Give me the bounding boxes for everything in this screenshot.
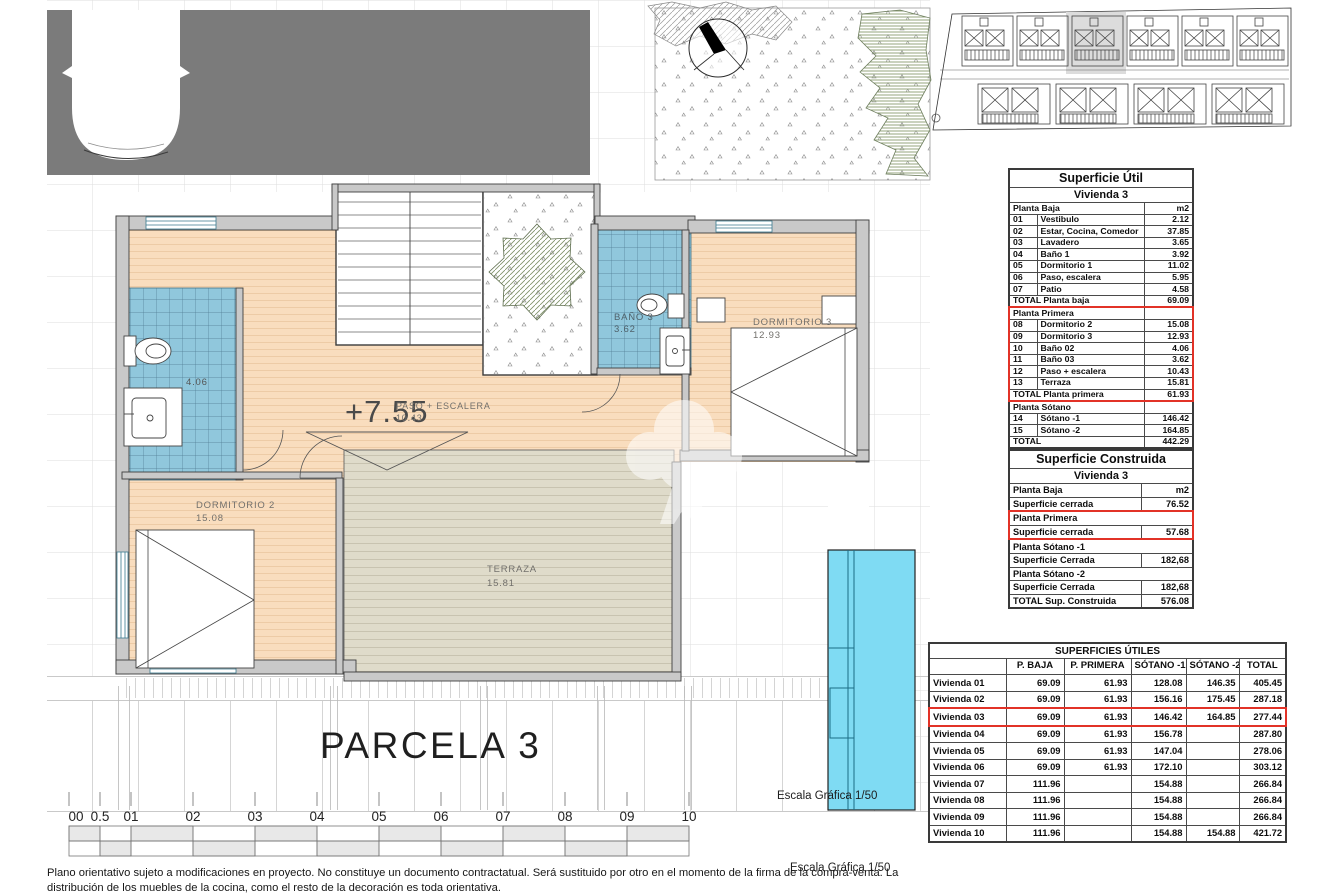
table-cell: 111.96 (1006, 809, 1064, 826)
table-cell: 69.09 (1006, 691, 1064, 708)
table-cell: Vivienda 10 (929, 825, 1006, 842)
table-title-row: SUPERFICIES ÚTILES (929, 643, 1286, 659)
table-cell: 182,68 (1141, 553, 1193, 567)
table-cell: 57.68 (1141, 525, 1193, 539)
table-row: Planta Bajam2 (1009, 203, 1193, 215)
table-row: TOTAL Planta primera61.93 (1009, 389, 1193, 401)
table-cell: 303.12 (1239, 759, 1286, 776)
table-row: Vivienda 0669.0961.93172.10303.12 (929, 759, 1286, 776)
table-row: Vivienda 07111.96154.88266.84 (929, 776, 1286, 793)
paso-area: 10.43 (396, 413, 423, 423)
table-cell: Dormitorio 2 (1037, 319, 1144, 331)
table-cell: Vivienda 01 (929, 675, 1006, 692)
svg-text:09: 09 (619, 809, 634, 824)
table-row: TOTAL Planta baja69.09 (1009, 295, 1193, 307)
table-row: Planta Sótano -2 (1009, 567, 1193, 581)
table-cell: Dormitorio 1 (1037, 260, 1144, 272)
table-row: Superficie cerrada57.68 (1009, 525, 1193, 539)
table-cell: 12 (1009, 366, 1037, 378)
table-cell: Vivienda 06 (929, 759, 1006, 776)
bano3-label: BAÑO 3 (614, 312, 654, 323)
table-cell: 3.92 (1144, 249, 1193, 261)
table-cell: Vivienda 02 (929, 691, 1006, 708)
table-cell: 69.09 (1144, 295, 1193, 307)
room-bano2 (122, 288, 236, 480)
table-cell: Planta Primera (1009, 307, 1144, 319)
table-cell: 576.08 (1141, 594, 1193, 608)
parcel-label: PARCELA 3 (320, 725, 541, 766)
table-cell: Superficie cerrada (1009, 497, 1141, 511)
table-cell: 11 (1009, 354, 1037, 366)
table-cell: 04 (1009, 249, 1037, 261)
table-cell: 266.84 (1239, 792, 1286, 809)
table-cell: 69.09 (1006, 743, 1064, 760)
svg-text:04: 04 (309, 809, 325, 824)
table-cell: Patio (1037, 284, 1144, 296)
table-cell (1186, 759, 1239, 776)
table-cell: 15.08 (1144, 319, 1193, 331)
table-cell: 146.42 (1144, 413, 1193, 425)
table-cell: 61.93 (1064, 708, 1131, 726)
floor-plan-sheet: +7.55 PASO + ESCALERA 10.43 4.06 BAÑO 3 … (0, 0, 1320, 895)
table-cell: 154.88 (1131, 792, 1186, 809)
table-cell: TOTAL Planta baja (1009, 295, 1144, 307)
table-cell: 13 (1009, 377, 1037, 389)
table-row: Vivienda 09111.96154.88266.84 (929, 809, 1286, 826)
table-cell: 69.09 (1006, 759, 1064, 776)
level-label: +7.55 (345, 394, 428, 429)
table-row: 14Sótano -1146.42 (1009, 413, 1193, 425)
table-cell: 147.04 (1131, 743, 1186, 760)
table-cell: Sótano -1 (1037, 413, 1144, 425)
sink-bano3 (660, 328, 690, 374)
table-title: Superficie Construida (1009, 450, 1193, 469)
table-cell: 06 (1009, 272, 1037, 284)
table-cell: 69.09 (1006, 726, 1064, 743)
table-cell: 11.02 (1144, 260, 1193, 272)
table-cell: Planta Sótano -1 (1009, 539, 1193, 553)
window (716, 221, 772, 232)
table-cell: 3.62 (1144, 354, 1193, 366)
table-row: 02Estar, Cocina, Comedor37.85 (1009, 226, 1193, 238)
table-cell: 3.65 (1144, 237, 1193, 249)
table-subtitle-row: Vivienda 3 (1009, 188, 1193, 203)
table-cell: Lavadero (1037, 237, 1144, 249)
table-cell: Dormitorio 3 (1037, 331, 1144, 343)
table-cell: Baño 1 (1037, 249, 1144, 261)
table-cell: TOTAL Sup. Construida (1009, 594, 1141, 608)
table-cell: 08 (1009, 319, 1037, 331)
table-cell: 154.88 (1131, 825, 1186, 842)
table-cell: 01 (1009, 214, 1037, 226)
table-cell: Vivienda 04 (929, 726, 1006, 743)
table-cell: 266.84 (1239, 809, 1286, 826)
table-cell: 10.43 (1144, 366, 1193, 378)
table-cell: 02 (1009, 226, 1037, 238)
table-row: Planta Primera (1009, 307, 1193, 319)
table-cell: 287.18 (1239, 691, 1286, 708)
table-cell (1064, 776, 1131, 793)
column-header: SÓTANO -2 (1186, 659, 1239, 675)
table-cell: 111.96 (1006, 792, 1064, 809)
table-cell: Baño 02 (1037, 343, 1144, 355)
table-cell: 111.96 (1006, 825, 1064, 842)
landscape-area (648, 2, 931, 180)
table-row: Planta Bajam2 (1009, 484, 1193, 498)
svg-text:01: 01 (123, 809, 138, 824)
terraza-label: TERRAZA (487, 564, 537, 575)
table-cell: 76.52 (1141, 497, 1193, 511)
car-outline (62, 10, 190, 160)
table-title: SUPERFICIES ÚTILES (929, 643, 1286, 659)
table-cell: 61.93 (1064, 759, 1131, 776)
table-row: 04Baño 13.92 (1009, 249, 1193, 261)
table-row: Planta Primera (1009, 511, 1193, 525)
table-row: 01Vestibulo2.12 (1009, 214, 1193, 226)
table-cell: Paso, escalera (1037, 272, 1144, 284)
table-cell: Vivienda 08 (929, 792, 1006, 809)
roof-carport (47, 10, 590, 175)
table-row: 06Paso, escalera5.95 (1009, 272, 1193, 284)
table-cell: 15 (1009, 425, 1037, 437)
table-cell: Estar, Cocina, Comedor (1037, 226, 1144, 238)
table-cell: Terraza (1037, 377, 1144, 389)
table-cell: 146.42 (1131, 708, 1186, 726)
table-row: 11Baño 033.62 (1009, 354, 1193, 366)
window (117, 552, 128, 638)
table-row: 03Lavadero3.65 (1009, 237, 1193, 249)
column-header (929, 659, 1006, 675)
table-cell: Vestibulo (1037, 214, 1144, 226)
svg-text:03: 03 (247, 809, 262, 824)
terraza-deck (344, 450, 674, 672)
table-row: Superficie cerrada76.52 (1009, 497, 1193, 511)
table-subtitle: Vivienda 3 (1009, 188, 1193, 203)
pool (828, 550, 915, 810)
table-cell: 2.12 (1144, 214, 1193, 226)
table-header-row: P. BAJA P. PRIMERA SÓTANO -1 SÓTANO -2 T… (929, 659, 1286, 675)
table-cell: 172.10 (1131, 759, 1186, 776)
table-cell: 156.16 (1131, 691, 1186, 708)
table-cell: 05 (1009, 260, 1037, 272)
table-cell: 405.45 (1239, 675, 1286, 692)
svg-text:02: 02 (185, 809, 200, 824)
table-cell (1186, 792, 1239, 809)
table-cell: 182,68 (1141, 581, 1193, 595)
table-row: TOTAL Sup. Construida576.08 (1009, 594, 1193, 608)
window (146, 217, 216, 229)
table-cell: Vivienda 03 (929, 708, 1006, 726)
dormitorio2-label: DORMITORIO 2 (196, 500, 275, 511)
column-header: P. BAJA (1006, 659, 1064, 675)
table-cell: Baño 03 (1037, 354, 1144, 366)
table-cell: 175.45 (1186, 691, 1239, 708)
dormitorio3-label: DORMITORIO 3 (753, 317, 832, 328)
table-row: Vivienda 0469.0961.93156.78287.80 (929, 726, 1286, 743)
table-cell: 111.96 (1006, 776, 1064, 793)
table-cell: 146.35 (1186, 675, 1239, 692)
table-cell: Paso + escalera (1037, 366, 1144, 378)
bed-dormitorio2 (136, 530, 254, 668)
table-cell: 156.78 (1131, 726, 1186, 743)
table-row: Vivienda 0169.0961.93128.08146.35405.45 (929, 675, 1286, 692)
table-cell: Vivienda 09 (929, 809, 1006, 826)
table-row: Superficie Cerrada182,68 (1009, 553, 1193, 567)
table-title-row: Superficie Útil (1009, 169, 1193, 188)
table-cell: 09 (1009, 331, 1037, 343)
table-row: 07Patio4.58 (1009, 284, 1193, 296)
table-cell: 421.72 (1239, 825, 1286, 842)
table-cell (1186, 809, 1239, 826)
table-cell: TOTAL (1009, 436, 1144, 448)
svg-text:08: 08 (557, 809, 572, 824)
svg-text:10: 10 (681, 809, 696, 824)
table-cell: 164.85 (1186, 708, 1239, 726)
table-cell: m2 (1144, 203, 1193, 215)
patio-tree (483, 189, 597, 375)
table-cell: 442.29 (1144, 436, 1193, 448)
table-row: 10Baño 024.06 (1009, 343, 1193, 355)
table-cell (1144, 307, 1193, 319)
table-row: Planta Sótano (1009, 401, 1193, 413)
table-row: 08Dormitorio 215.08 (1009, 319, 1193, 331)
table-cell: 15.81 (1144, 377, 1193, 389)
table-cell: 69.09 (1006, 708, 1064, 726)
table-cell: Planta Baja (1009, 484, 1141, 498)
table-cell: 154.88 (1186, 825, 1239, 842)
table-cell (1186, 776, 1239, 793)
table-cell: 14 (1009, 413, 1037, 425)
column-header: SÓTANO -1 (1131, 659, 1186, 675)
table-cell: 61.93 (1064, 675, 1131, 692)
table-cell: 61.93 (1064, 743, 1131, 760)
table-cell: 61.93 (1144, 389, 1193, 401)
paso-label: PASO + ESCALERA (396, 401, 491, 411)
table-row: 09Dormitorio 312.93 (1009, 331, 1193, 343)
table-cell (1064, 825, 1131, 842)
table-row: 13Terraza15.81 (1009, 377, 1193, 389)
table-cell: 61.93 (1064, 691, 1131, 708)
table-cell: Planta Sótano (1009, 401, 1144, 413)
table-cell: 10 (1009, 343, 1037, 355)
table-row: Vivienda 0269.0961.93156.16175.45287.18 (929, 691, 1286, 708)
table-row: Vivienda 0569.0961.93147.04278.06 (929, 743, 1286, 760)
superficie-construida-table: Superficie Construida Vivienda 3 Planta … (1008, 449, 1194, 609)
svg-text:07: 07 (495, 809, 510, 824)
table-cell: Sótano -2 (1037, 425, 1144, 437)
svg-text:05: 05 (371, 809, 386, 824)
table-cell: 128.08 (1131, 675, 1186, 692)
table-row: Superficie Cerrada182,68 (1009, 581, 1193, 595)
table-cell: 4.58 (1144, 284, 1193, 296)
table-cell: 266.84 (1239, 776, 1286, 793)
superficie-util-table: Superficie Útil Vivienda 3 Planta Bajam2… (1008, 168, 1194, 449)
table-cell (1144, 401, 1193, 413)
bano3-area: 3.62 (614, 324, 636, 335)
table-title-row: Superficie Construida (1009, 450, 1193, 469)
table-row: Vivienda 08111.96154.88266.84 (929, 792, 1286, 809)
toilet-bano2 (124, 336, 171, 366)
table-cell (1186, 726, 1239, 743)
svg-text:00: 00 (68, 809, 83, 824)
table-cell (1064, 792, 1131, 809)
bano2-area: 4.06 (186, 377, 208, 388)
table-row: TOTAL442.29 (1009, 436, 1193, 448)
footer-disclaimer-line1: Plano orientativo sujeto a modificacione… (47, 866, 1307, 880)
table-cell: 12.93 (1144, 331, 1193, 343)
table-subtitle-row: Vivienda 3 (1009, 469, 1193, 484)
stairwell (336, 189, 483, 345)
dormitorio3-area: 12.93 (753, 330, 781, 341)
table-row: Planta Sótano -1 (1009, 539, 1193, 553)
superficies-utiles-table: SUPERFICIES ÚTILES P. BAJA P. PRIMERA SÓ… (928, 642, 1287, 843)
table-title: Superficie Útil (1009, 169, 1193, 188)
north-arrow-icon (689, 19, 747, 77)
table-cell: TOTAL Planta primera (1009, 389, 1144, 401)
table-cell: Vivienda 05 (929, 743, 1006, 760)
table-cell: Planta Sótano -2 (1009, 567, 1193, 581)
table-cell: Superficie cerrada (1009, 525, 1141, 539)
dormitorio2-area: 15.08 (196, 513, 224, 524)
table-cell: 5.95 (1144, 272, 1193, 284)
svg-text:0.5: 0.5 (91, 809, 110, 824)
table-row: Vivienda 0369.0961.93146.42164.85277.44 (929, 708, 1286, 726)
table-cell: 4.06 (1144, 343, 1193, 355)
table-cell: Superficie Cerrada (1009, 553, 1141, 567)
column-header: P. PRIMERA (1064, 659, 1131, 675)
table-row: 05Dormitorio 111.02 (1009, 260, 1193, 272)
table-cell: m2 (1141, 484, 1193, 498)
table-cell: 278.06 (1239, 743, 1286, 760)
table-cell: Planta Baja (1009, 203, 1144, 215)
table-cell: 03 (1009, 237, 1037, 249)
sink-bano2 (124, 388, 182, 446)
site-plan-thumbnail (932, 8, 1291, 130)
table-cell: Superficie Cerrada (1009, 581, 1141, 595)
scale-caption-top: Escala Gráfica 1/50 (777, 790, 877, 802)
table-cell: 154.88 (1131, 809, 1186, 826)
footer-disclaimer-line2: distribución de los muebles de la cocina… (47, 881, 1307, 895)
svg-text:06: 06 (433, 809, 448, 824)
table-row: 15Sótano -2164.85 (1009, 425, 1193, 437)
table-row: Vivienda 10111.96154.88154.88421.72 (929, 825, 1286, 842)
table-cell: 61.93 (1064, 726, 1131, 743)
table-cell: 154.88 (1131, 776, 1186, 793)
table-cell (1186, 743, 1239, 760)
table-subtitle: Vivienda 3 (1009, 469, 1193, 484)
table-cell: 37.85 (1144, 226, 1193, 238)
table-cell: 277.44 (1239, 708, 1286, 726)
table-cell: 287.80 (1239, 726, 1286, 743)
column-header: TOTAL (1239, 659, 1286, 675)
table-row: 12Paso + escalera10.43 (1009, 366, 1193, 378)
terraza-area: 15.81 (487, 578, 515, 589)
table-cell (1064, 809, 1131, 826)
table-cell: Vivienda 07 (929, 776, 1006, 793)
table-cell: Planta Primera (1009, 511, 1193, 525)
table-cell: 69.09 (1006, 675, 1064, 692)
table-cell: 164.85 (1144, 425, 1193, 437)
table-cell: 07 (1009, 284, 1037, 296)
